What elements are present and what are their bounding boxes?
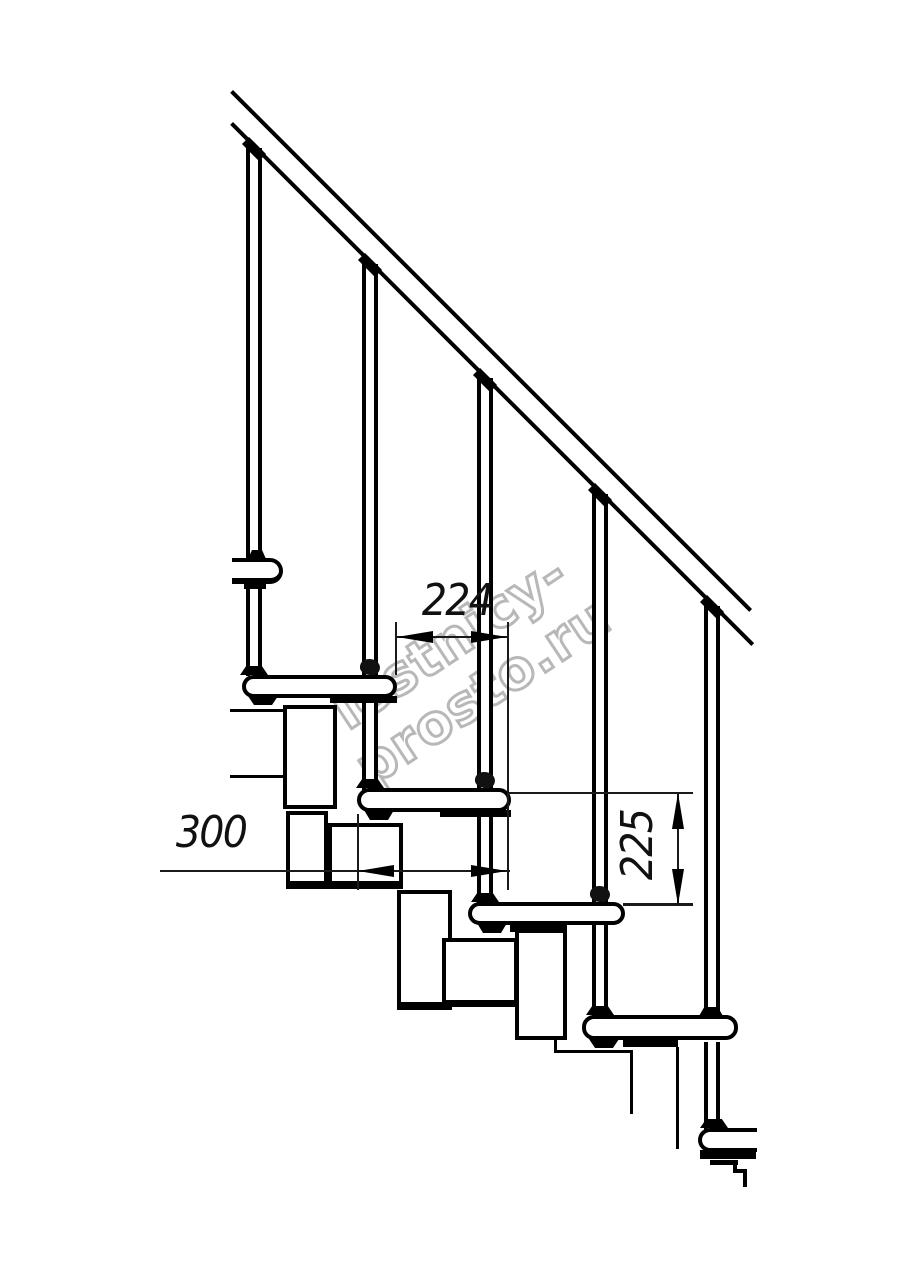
tread-3-baluster-wedge: [471, 893, 499, 902]
dim-300-extension-left: [357, 814, 359, 890]
wall-line-lower: [230, 775, 285, 778]
support-module-3: [328, 823, 403, 889]
break-line-3: [630, 1050, 633, 1114]
dim-224-arrow-right: [471, 631, 507, 643]
tread-2-mount-bar: [440, 810, 511, 817]
dim-225-arrow-up: [672, 793, 684, 829]
tread-1-mount-bar: [330, 696, 397, 703]
dim-225-arrow-down: [672, 869, 684, 905]
staircase-technical-drawing: lestnicy-prosto.ru: [0, 0, 914, 1280]
dim-224-extension-left: [395, 622, 397, 675]
baluster-5-lower: [704, 1042, 720, 1130]
dim-300-arrow-left: [358, 865, 394, 877]
tread-2: [357, 788, 511, 812]
dim-224-extension-right: [507, 622, 509, 890]
dim-224-arrow-left: [397, 631, 433, 643]
tread-3: [468, 902, 625, 925]
tread-4-foot: [589, 1039, 619, 1048]
dim-224-label: 224: [403, 577, 511, 625]
tread-2-foot: [364, 810, 394, 820]
tread-3-foot: [477, 923, 507, 933]
break-line-4: [676, 1047, 679, 1149]
support-module-5: [442, 938, 518, 1007]
tread-4-mount-bar: [623, 1040, 678, 1047]
tread-1-baluster-wedge: [240, 666, 268, 675]
dim-300-line: [160, 870, 510, 872]
support-module-6: [515, 929, 567, 1040]
wall-bracket: [232, 558, 283, 584]
baluster-2: [362, 264, 378, 790]
tread-4: [582, 1015, 738, 1040]
wall-bracket-collar: [244, 583, 266, 589]
baluster-5-upper: [704, 606, 720, 1016]
baluster-4: [592, 494, 608, 1016]
break-line-2: [554, 1050, 633, 1053]
tread-1: [242, 675, 397, 698]
tread-5-break-4: [743, 1169, 747, 1187]
tread-5-cut: [698, 1128, 757, 1152]
tread-5-mount-bar: [700, 1150, 756, 1159]
dim-225-extension-top: [509, 792, 693, 794]
support-module-1: [283, 705, 337, 809]
wall-line-upper: [230, 709, 285, 712]
support-module-2: [286, 811, 328, 889]
dim-300-arrow-right: [471, 865, 507, 877]
dim-300-label: 300: [157, 809, 265, 857]
baluster-1: [246, 148, 262, 676]
dim-225-label: 225: [614, 791, 662, 899]
tread-4-baluster-wedge: [586, 1006, 614, 1015]
tread-1-foot: [248, 696, 278, 705]
tread-3-mount-bar: [510, 923, 567, 932]
